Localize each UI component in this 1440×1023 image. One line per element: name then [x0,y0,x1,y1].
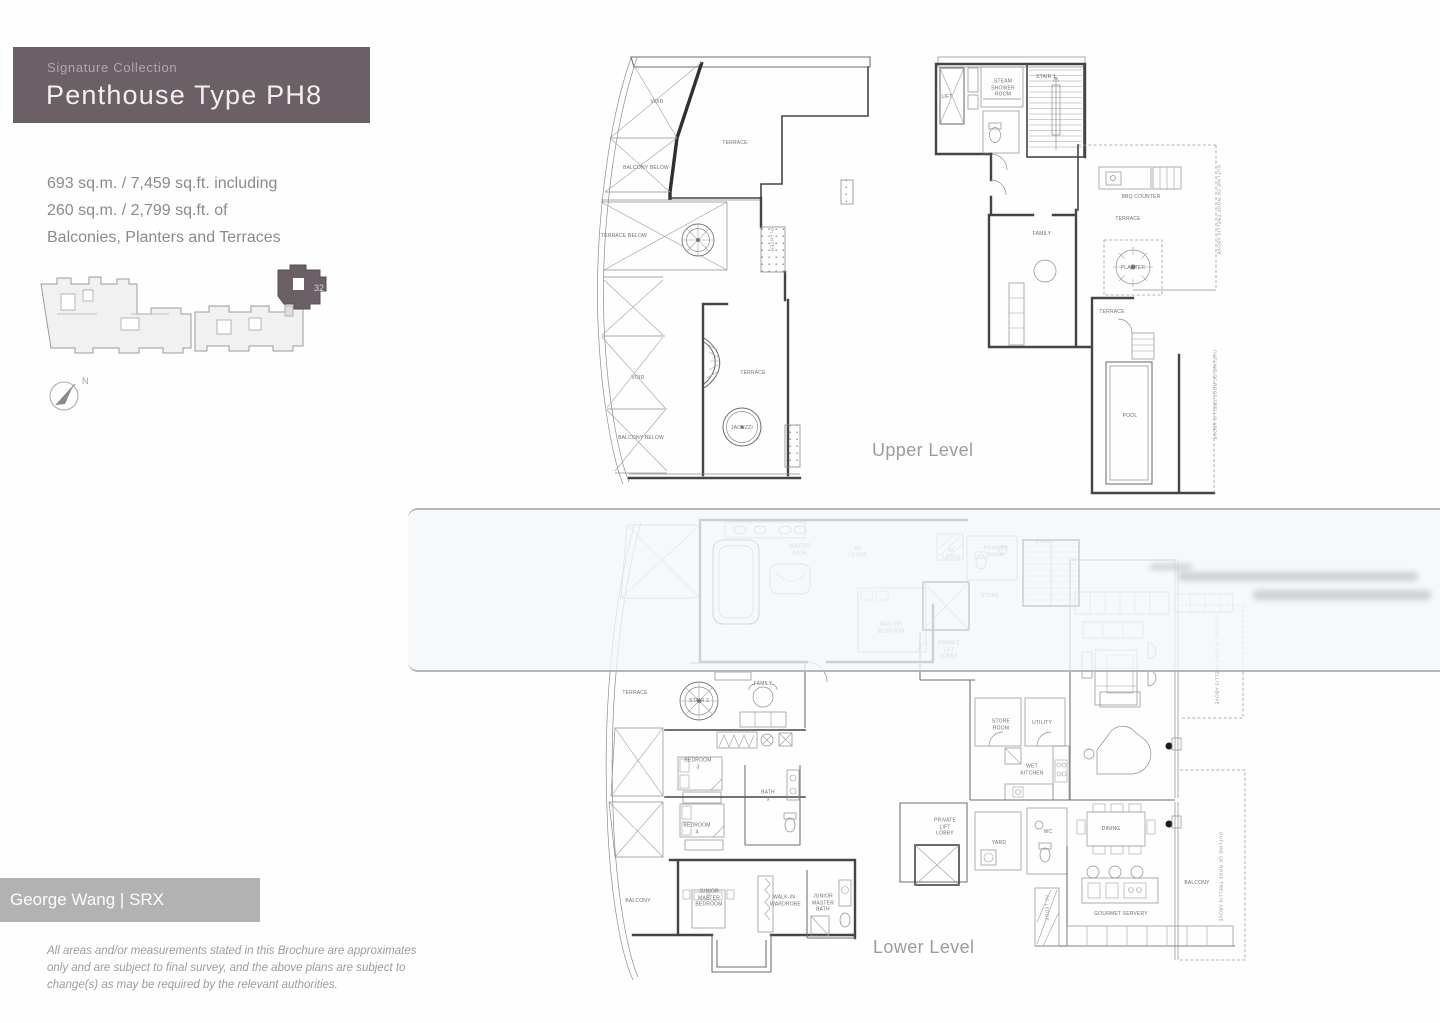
unit-number-label: 32 [314,283,324,293]
brochure-page: Signature Collection Penthouse Type PH8 … [0,0,1440,1023]
blurred-watermark-text [1253,590,1431,600]
upper-level-right-wing-plan [933,55,1238,500]
agent-watermark-badge: George Wang | SRX PROPERTY [0,878,260,922]
collection-label: Signature Collection [47,60,177,75]
disclaimer-line: All areas and/or measurements stated in … [47,943,416,960]
upper-level-caption: Upper Level [872,440,973,461]
page-title: Penthouse Type PH8 [46,80,322,111]
header-block: Signature Collection Penthouse Type PH8 [13,47,370,123]
disclaimer: All areas and/or measurements stated in … [47,943,416,994]
area-summary: 693 sq.m. / 7,459 sq.ft. including 260 s… [47,170,281,251]
disclaimer-line: change(s) as may be required by the rele… [47,977,416,994]
area-line: Balconies, Planters and Terraces [47,224,281,251]
area-line: 260 sq.m. / 2,799 sq.ft. of [47,197,281,224]
lower-level-plan [575,510,1250,1005]
area-line: 693 sq.m. / 7,459 sq.ft. including [47,170,281,197]
upper-level-left-wing-plan [585,52,885,487]
site-key-plan: 32 [35,262,335,362]
north-compass: N [42,370,102,418]
lower-level-caption: Lower Level [873,937,974,958]
north-label: N [82,376,89,386]
disclaimer-line: only and are subject to final survey, an… [47,960,416,977]
key-plan-building-left [41,277,191,353]
